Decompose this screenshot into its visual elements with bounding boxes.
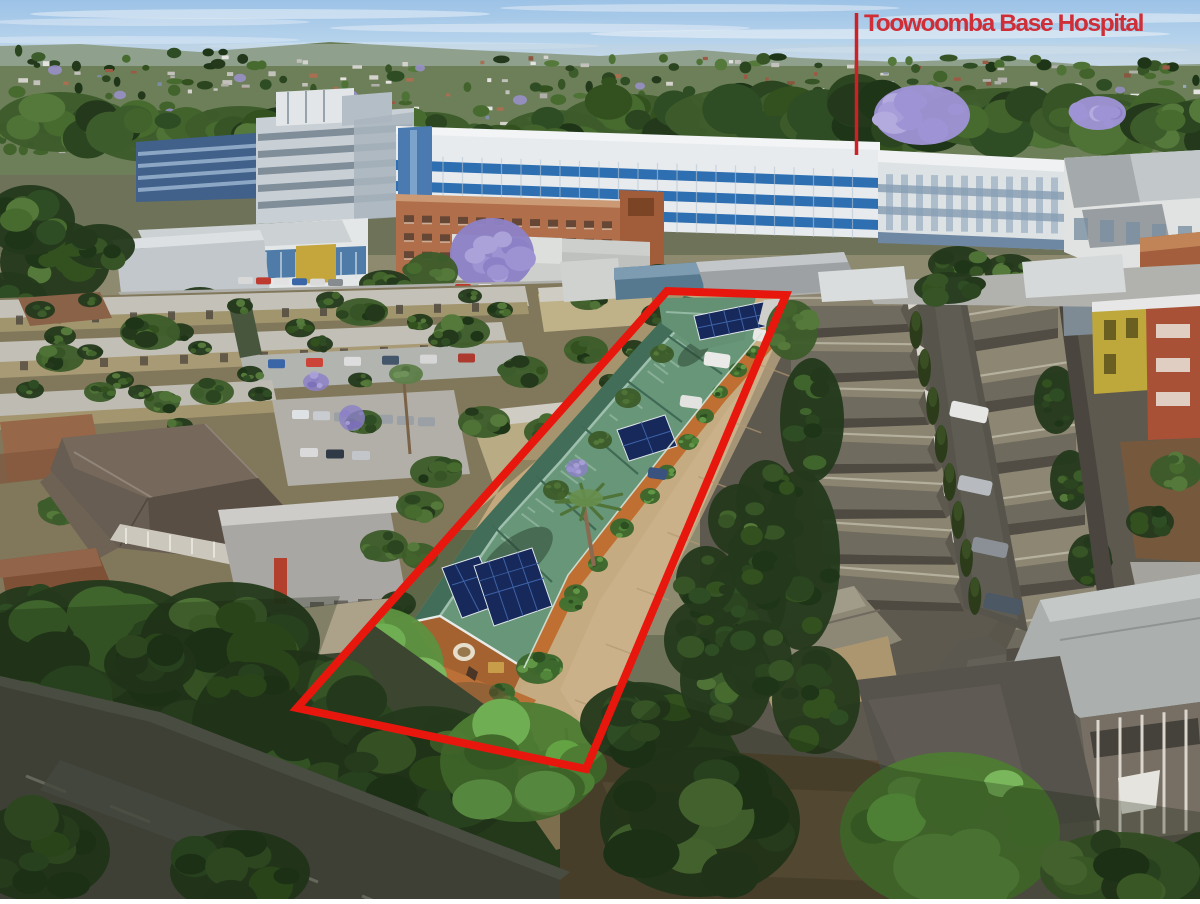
svg-text:Toowoomba Base Hospital: Toowoomba Base Hospital — [864, 10, 1144, 37]
